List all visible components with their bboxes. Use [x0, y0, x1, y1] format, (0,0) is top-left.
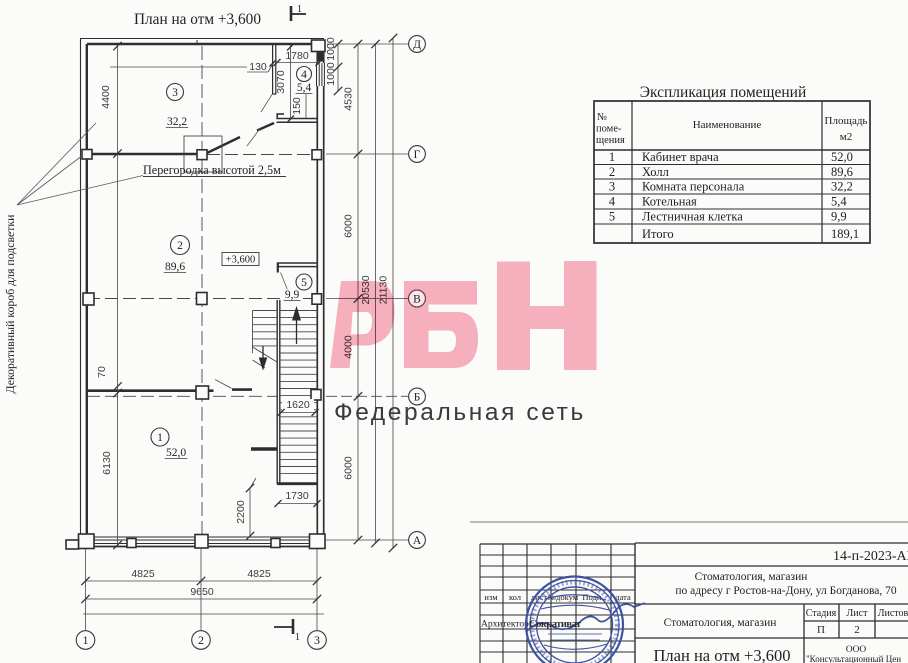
- svg-text:32,2: 32,2: [167, 116, 187, 128]
- svg-text:Стоматология, магазин: Стоматология, магазин: [695, 571, 808, 583]
- svg-text:3: 3: [609, 180, 615, 194]
- svg-text:Перегородка высотой 2,5м: Перегородка высотой 2,5м: [143, 163, 281, 177]
- svg-text:кол: кол: [509, 592, 522, 602]
- svg-text:6000: 6000: [343, 214, 355, 238]
- svg-text:Сокративат: Сокративат: [529, 619, 582, 630]
- svg-text:9,9: 9,9: [285, 289, 300, 301]
- svg-text:1000: 1000: [325, 62, 337, 86]
- svg-text:щения: щения: [596, 135, 625, 146]
- svg-text:Архитектор: Архитектор: [481, 620, 529, 630]
- svg-text:70: 70: [96, 366, 108, 378]
- svg-text:1: 1: [295, 632, 300, 643]
- svg-text:89,6: 89,6: [165, 261, 185, 273]
- svg-text:Г: Г: [414, 149, 421, 161]
- svg-text:1: 1: [157, 432, 163, 444]
- svg-text:Комната персонала: Комната персонала: [642, 180, 745, 194]
- svg-text:52,0: 52,0: [166, 447, 186, 459]
- svg-text:4825: 4825: [131, 568, 155, 580]
- svg-text:Наименование: Наименование: [693, 119, 762, 131]
- svg-text:2: 2: [198, 633, 204, 647]
- svg-text:Д: Д: [413, 39, 421, 51]
- svg-text:1000: 1000: [325, 37, 337, 61]
- svg-text:189,1: 189,1: [831, 227, 859, 241]
- svg-text:1: 1: [83, 633, 89, 647]
- svg-text:4: 4: [609, 195, 616, 209]
- svg-text:по адресу г Ростов-на-Дону,: по адресу г Ростов-на-Дону, ул Богданова…: [675, 585, 896, 597]
- svg-text:1780: 1780: [285, 50, 309, 62]
- svg-text:1620: 1620: [286, 399, 310, 411]
- svg-text:+3,600: +3,600: [226, 255, 256, 266]
- svg-text:м2: м2: [840, 131, 852, 143]
- svg-text:№: №: [597, 112, 607, 123]
- svg-text:"Консультационный Цен: "Консультационный Цен: [806, 654, 901, 663]
- svg-text:изм: изм: [484, 592, 498, 602]
- svg-text:Федеральная сеть: Федеральная сеть: [334, 399, 586, 426]
- svg-text:1: 1: [609, 150, 615, 164]
- svg-text:Кабинет врача: Кабинет врача: [642, 150, 719, 164]
- svg-text:2: 2: [854, 624, 860, 636]
- svg-text:9650: 9650: [190, 586, 214, 598]
- svg-text:3: 3: [172, 87, 178, 99]
- svg-text:А: А: [413, 535, 422, 547]
- svg-text:150: 150: [291, 97, 303, 115]
- svg-text:4825: 4825: [247, 568, 271, 580]
- svg-text:1730: 1730: [285, 490, 309, 502]
- svg-text:Лист: Лист: [847, 608, 869, 619]
- svg-text:Листов: Листов: [878, 608, 908, 619]
- svg-text:Холл: Холл: [642, 165, 669, 179]
- svg-text:2: 2: [177, 240, 183, 252]
- svg-text:14-п-2023-АР: 14-п-2023-АР: [833, 549, 908, 564]
- svg-text:5: 5: [301, 277, 307, 289]
- svg-text:4400: 4400: [100, 85, 112, 109]
- svg-text:2: 2: [609, 165, 615, 179]
- svg-text:План на отм +3,600: План на отм +3,600: [134, 11, 261, 28]
- svg-text:32,2: 32,2: [831, 180, 853, 194]
- svg-text:Лестничная клетка: Лестничная клетка: [642, 210, 743, 224]
- svg-text:поме-: поме-: [596, 124, 622, 135]
- svg-text:Итого: Итого: [642, 227, 674, 241]
- svg-text:П: П: [817, 624, 825, 636]
- svg-text:3070: 3070: [275, 70, 287, 94]
- svg-text:Котельная: Котельная: [642, 195, 697, 209]
- svg-text:89,6: 89,6: [831, 165, 853, 179]
- svg-text:5,4: 5,4: [831, 195, 847, 209]
- svg-text:130: 130: [249, 61, 267, 73]
- svg-text:5: 5: [609, 210, 615, 224]
- svg-text:Декоративный короб для подсвет: Декоративный короб для подсветки: [3, 214, 17, 394]
- svg-text:4530: 4530: [343, 87, 355, 111]
- svg-text:5,4: 5,4: [297, 82, 312, 94]
- svg-text:52,0: 52,0: [831, 150, 853, 164]
- svg-text:9,9: 9,9: [831, 210, 847, 224]
- svg-text:3: 3: [314, 633, 320, 647]
- svg-text:4: 4: [301, 69, 307, 81]
- svg-text:2200: 2200: [235, 500, 247, 524]
- svg-text:6130: 6130: [101, 451, 113, 475]
- svg-text:1: 1: [297, 4, 302, 15]
- svg-text:Стоматология, магазин: Стоматология, магазин: [664, 617, 777, 629]
- svg-text:Стадия: Стадия: [806, 608, 837, 619]
- svg-text:6000: 6000: [343, 456, 355, 480]
- svg-text:План на отм +3,600: План на отм +3,600: [654, 646, 791, 663]
- svg-text:Экспликация помещений: Экспликация помещений: [640, 84, 807, 101]
- svg-text:Площадь: Площадь: [825, 115, 868, 127]
- svg-text:В: В: [413, 294, 421, 306]
